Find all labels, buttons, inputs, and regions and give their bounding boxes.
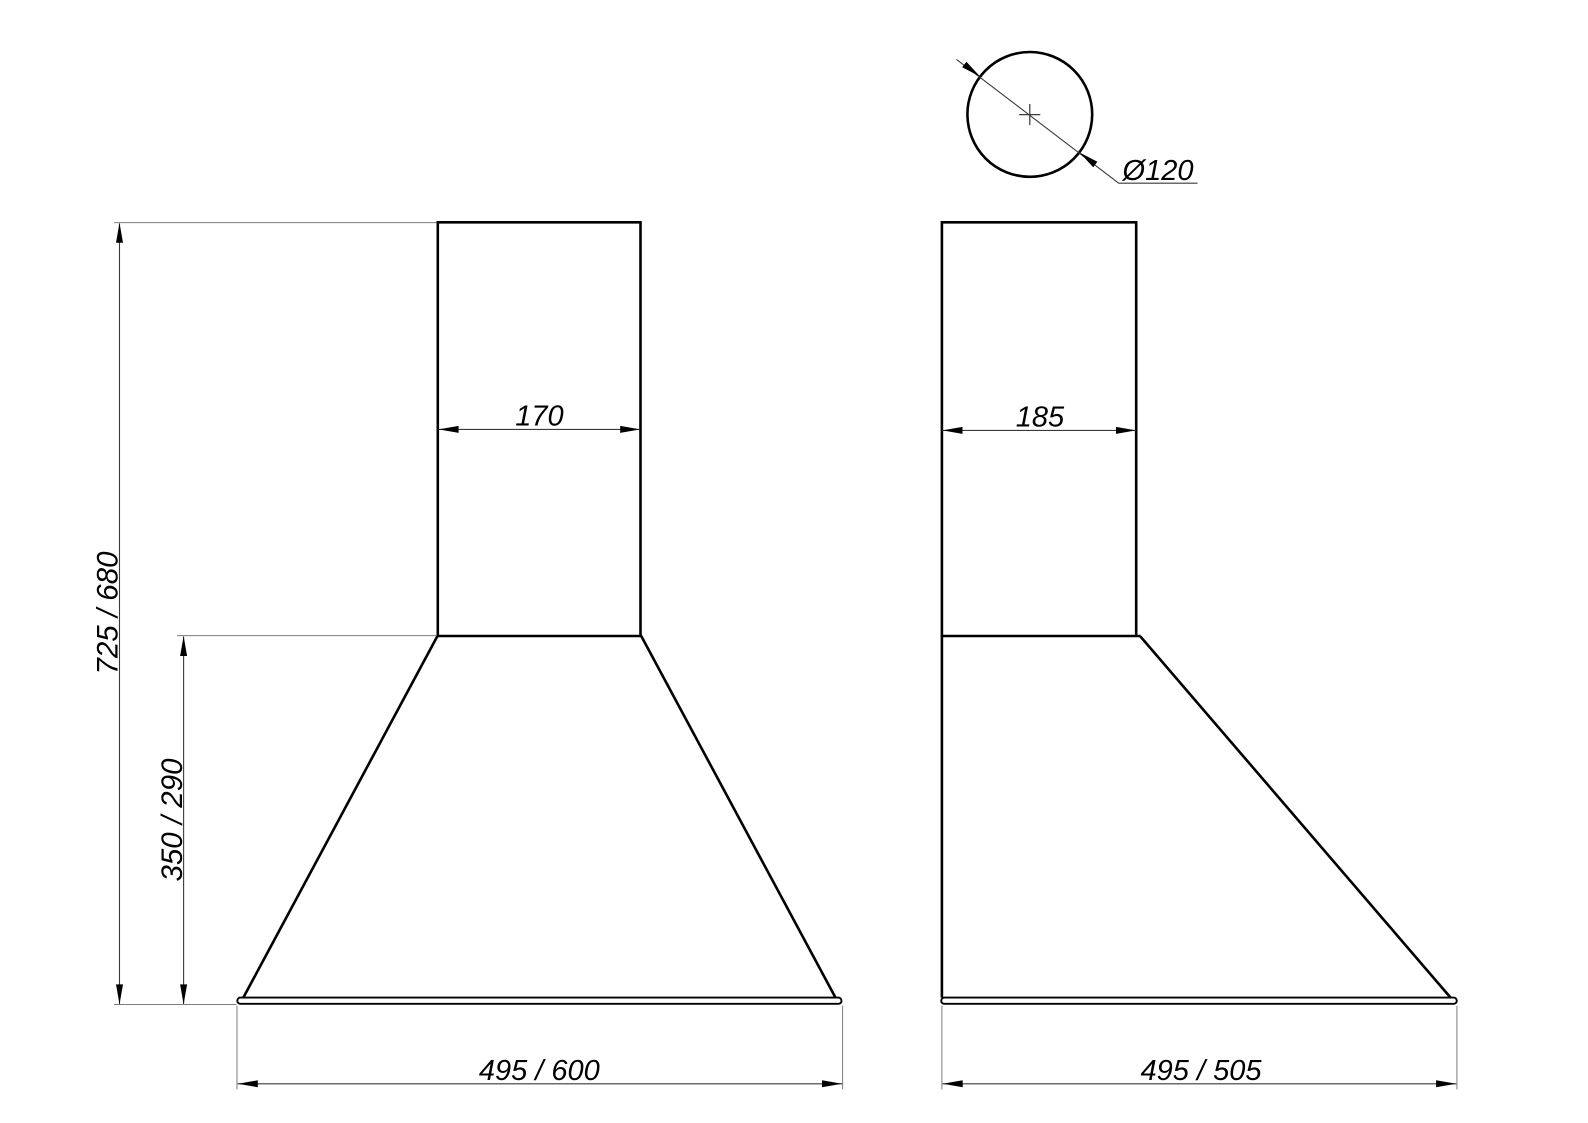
- svg-text:495 / 505: 495 / 505: [1141, 1055, 1263, 1087]
- svg-text:170: 170: [515, 401, 563, 433]
- svg-text:495 / 600: 495 / 600: [479, 1055, 600, 1087]
- svg-text:725 / 680: 725 / 680: [91, 551, 124, 675]
- svg-text:Ø120: Ø120: [1122, 155, 1194, 187]
- svg-text:185: 185: [1016, 401, 1065, 433]
- svg-text:350 / 290: 350 / 290: [156, 758, 189, 882]
